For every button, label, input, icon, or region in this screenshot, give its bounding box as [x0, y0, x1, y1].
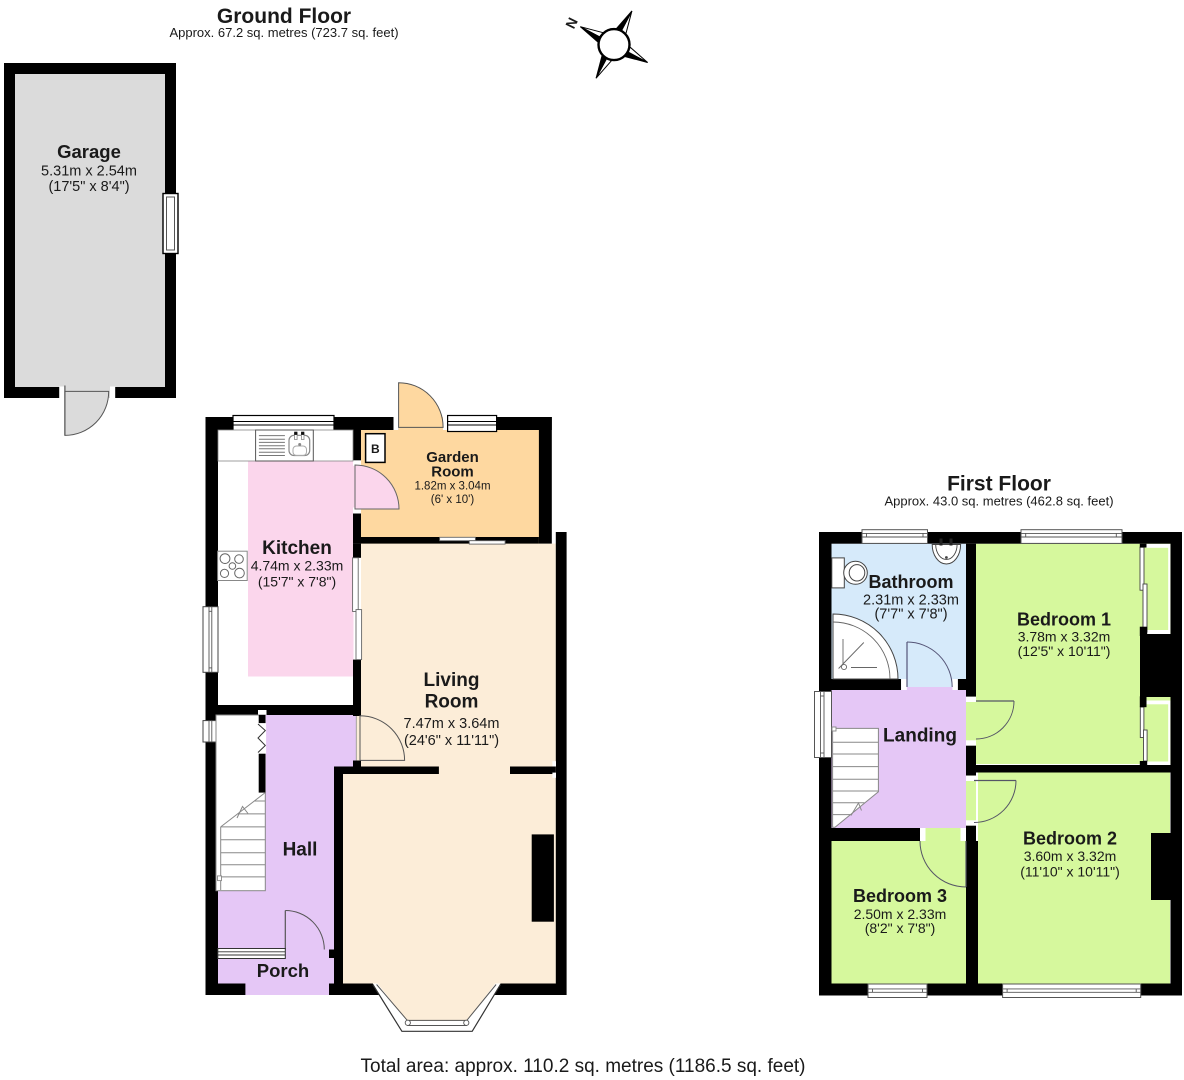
svg-text:(15'7" x 7'8"): (15'7" x 7'8"): [258, 574, 336, 590]
svg-text:Living: Living: [424, 670, 480, 691]
svg-text:(7'7" x 7'8"): (7'7" x 7'8"): [874, 607, 947, 623]
svg-text:Approx. 67.2 sq. metres (723.7: Approx. 67.2 sq. metres (723.7 sq. feet): [169, 25, 398, 40]
svg-text:7.47m x 3.64m: 7.47m x 3.64m: [404, 716, 500, 732]
svg-text:Total area: approx. 110.2 sq.: Total area: approx. 110.2 sq. metres (11…: [361, 1056, 806, 1077]
svg-text:Room: Room: [431, 464, 474, 481]
svg-text:Kitchen: Kitchen: [262, 538, 332, 559]
svg-text:Approx. 43.0 sq. metres (462.8: Approx. 43.0 sq. metres (462.8 sq. feet): [884, 493, 1113, 508]
svg-text:Porch: Porch: [257, 960, 309, 981]
svg-text:5.31m x 2.54m: 5.31m x 2.54m: [41, 164, 137, 180]
svg-text:(8'2" x 7'8"): (8'2" x 7'8"): [865, 920, 936, 936]
svg-text:Garage: Garage: [57, 141, 121, 162]
svg-text:Bedroom 1: Bedroom 1: [1017, 610, 1111, 630]
svg-text:Hall: Hall: [283, 840, 318, 861]
svg-text:1.82m x 3.04m: 1.82m x 3.04m: [414, 481, 490, 493]
svg-text:Bathroom: Bathroom: [869, 572, 954, 592]
svg-text:Bedroom 2: Bedroom 2: [1023, 829, 1117, 849]
svg-text:Room: Room: [425, 692, 479, 713]
svg-text:(24'6" x 11'11"): (24'6" x 11'11"): [404, 733, 499, 749]
svg-text:First Floor: First Floor: [947, 472, 1051, 495]
svg-text:(12'5" x 10'11"): (12'5" x 10'11"): [1018, 643, 1111, 659]
svg-text:B: B: [371, 442, 380, 456]
svg-text:3.60m x 3.32m: 3.60m x 3.32m: [1024, 848, 1117, 864]
svg-text:(6' x 10'): (6' x 10'): [431, 494, 475, 506]
svg-text:4.74m x 2.33m: 4.74m x 2.33m: [251, 558, 344, 574]
svg-text:(11'10" x 10'11"): (11'10" x 10'11"): [1020, 864, 1120, 880]
svg-text:(17'5" x 8'4"): (17'5" x 8'4"): [48, 179, 129, 195]
svg-text:Bedroom 3: Bedroom 3: [853, 886, 947, 906]
svg-text:Landing: Landing: [883, 726, 957, 747]
